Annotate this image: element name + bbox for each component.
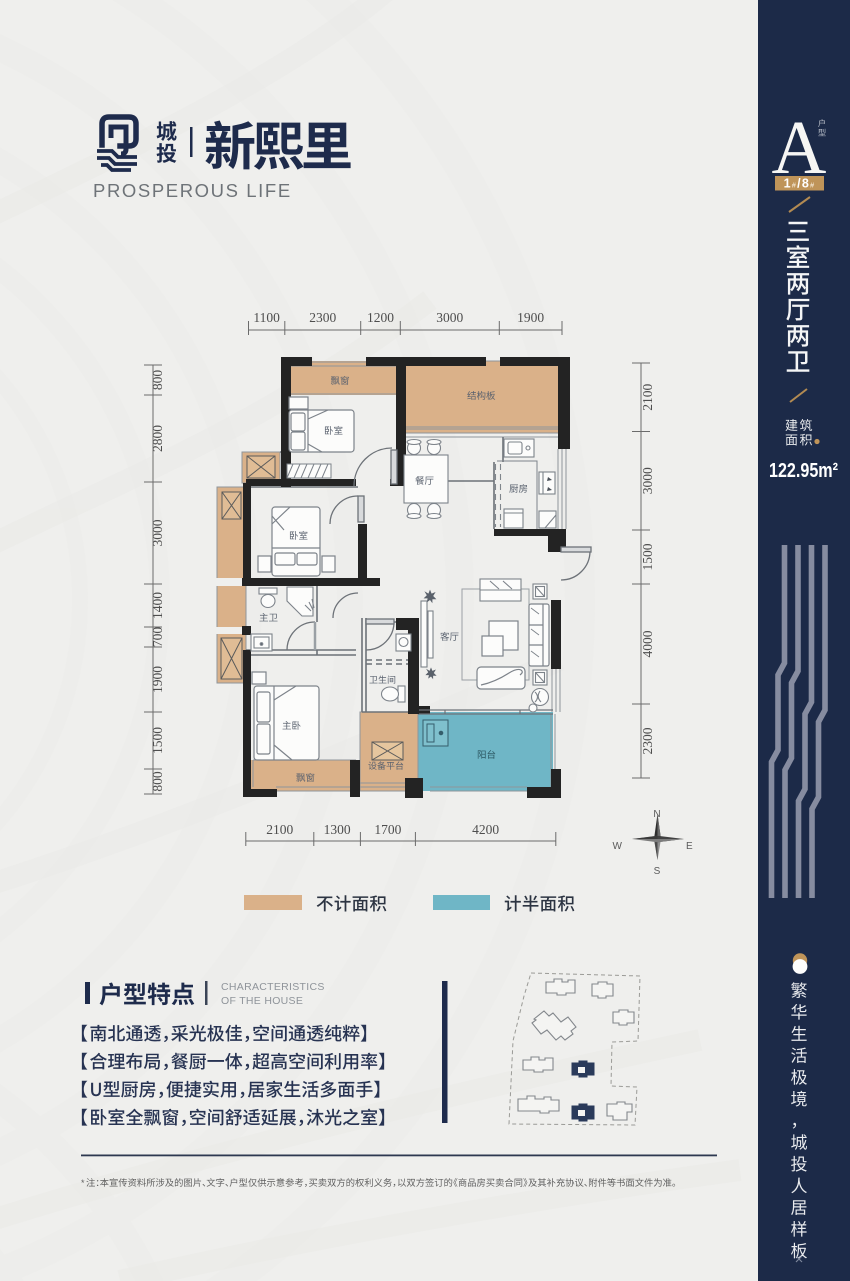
svg-text:S: S (654, 866, 661, 877)
svg-text:PROSPEROUS LIFE: PROSPEROUS LIFE (93, 180, 292, 201)
svg-text:2800: 2800 (150, 425, 165, 452)
svg-text:N: N (653, 809, 660, 820)
svg-text:2100: 2100 (640, 384, 655, 411)
svg-text:W: W (613, 841, 623, 852)
svg-text:1200: 1200 (367, 310, 394, 325)
svg-text:1500: 1500 (640, 543, 655, 570)
svg-text:E: E (686, 841, 693, 852)
svg-text:OF THE HOUSE: OF THE HOUSE (221, 995, 303, 1007)
svg-text:2300: 2300 (640, 727, 655, 754)
svg-text:4200: 4200 (472, 822, 499, 837)
svg-text:1300: 1300 (324, 822, 351, 837)
svg-text:3000: 3000 (640, 467, 655, 494)
svg-text:800: 800 (150, 370, 165, 391)
svg-text:1400: 1400 (150, 592, 165, 619)
svg-text:1900: 1900 (517, 310, 544, 325)
svg-text:CHARACTERISTICS: CHARACTERISTICS (221, 981, 325, 993)
svg-text:4000: 4000 (640, 630, 655, 657)
svg-text:700: 700 (150, 627, 165, 648)
svg-text:1100: 1100 (253, 310, 280, 325)
svg-text:2300: 2300 (309, 310, 336, 325)
svg-text:*: * (81, 1178, 85, 1188)
svg-text:800: 800 (150, 771, 165, 792)
svg-text:1700: 1700 (374, 822, 401, 837)
svg-text:2100: 2100 (266, 822, 293, 837)
svg-text:3000: 3000 (436, 310, 463, 325)
svg-text:1500: 1500 (150, 727, 165, 754)
svg-text:1900: 1900 (150, 666, 165, 693)
svg-text:122.95m²: 122.95m² (769, 459, 838, 482)
svg-text:3000: 3000 (150, 519, 165, 546)
